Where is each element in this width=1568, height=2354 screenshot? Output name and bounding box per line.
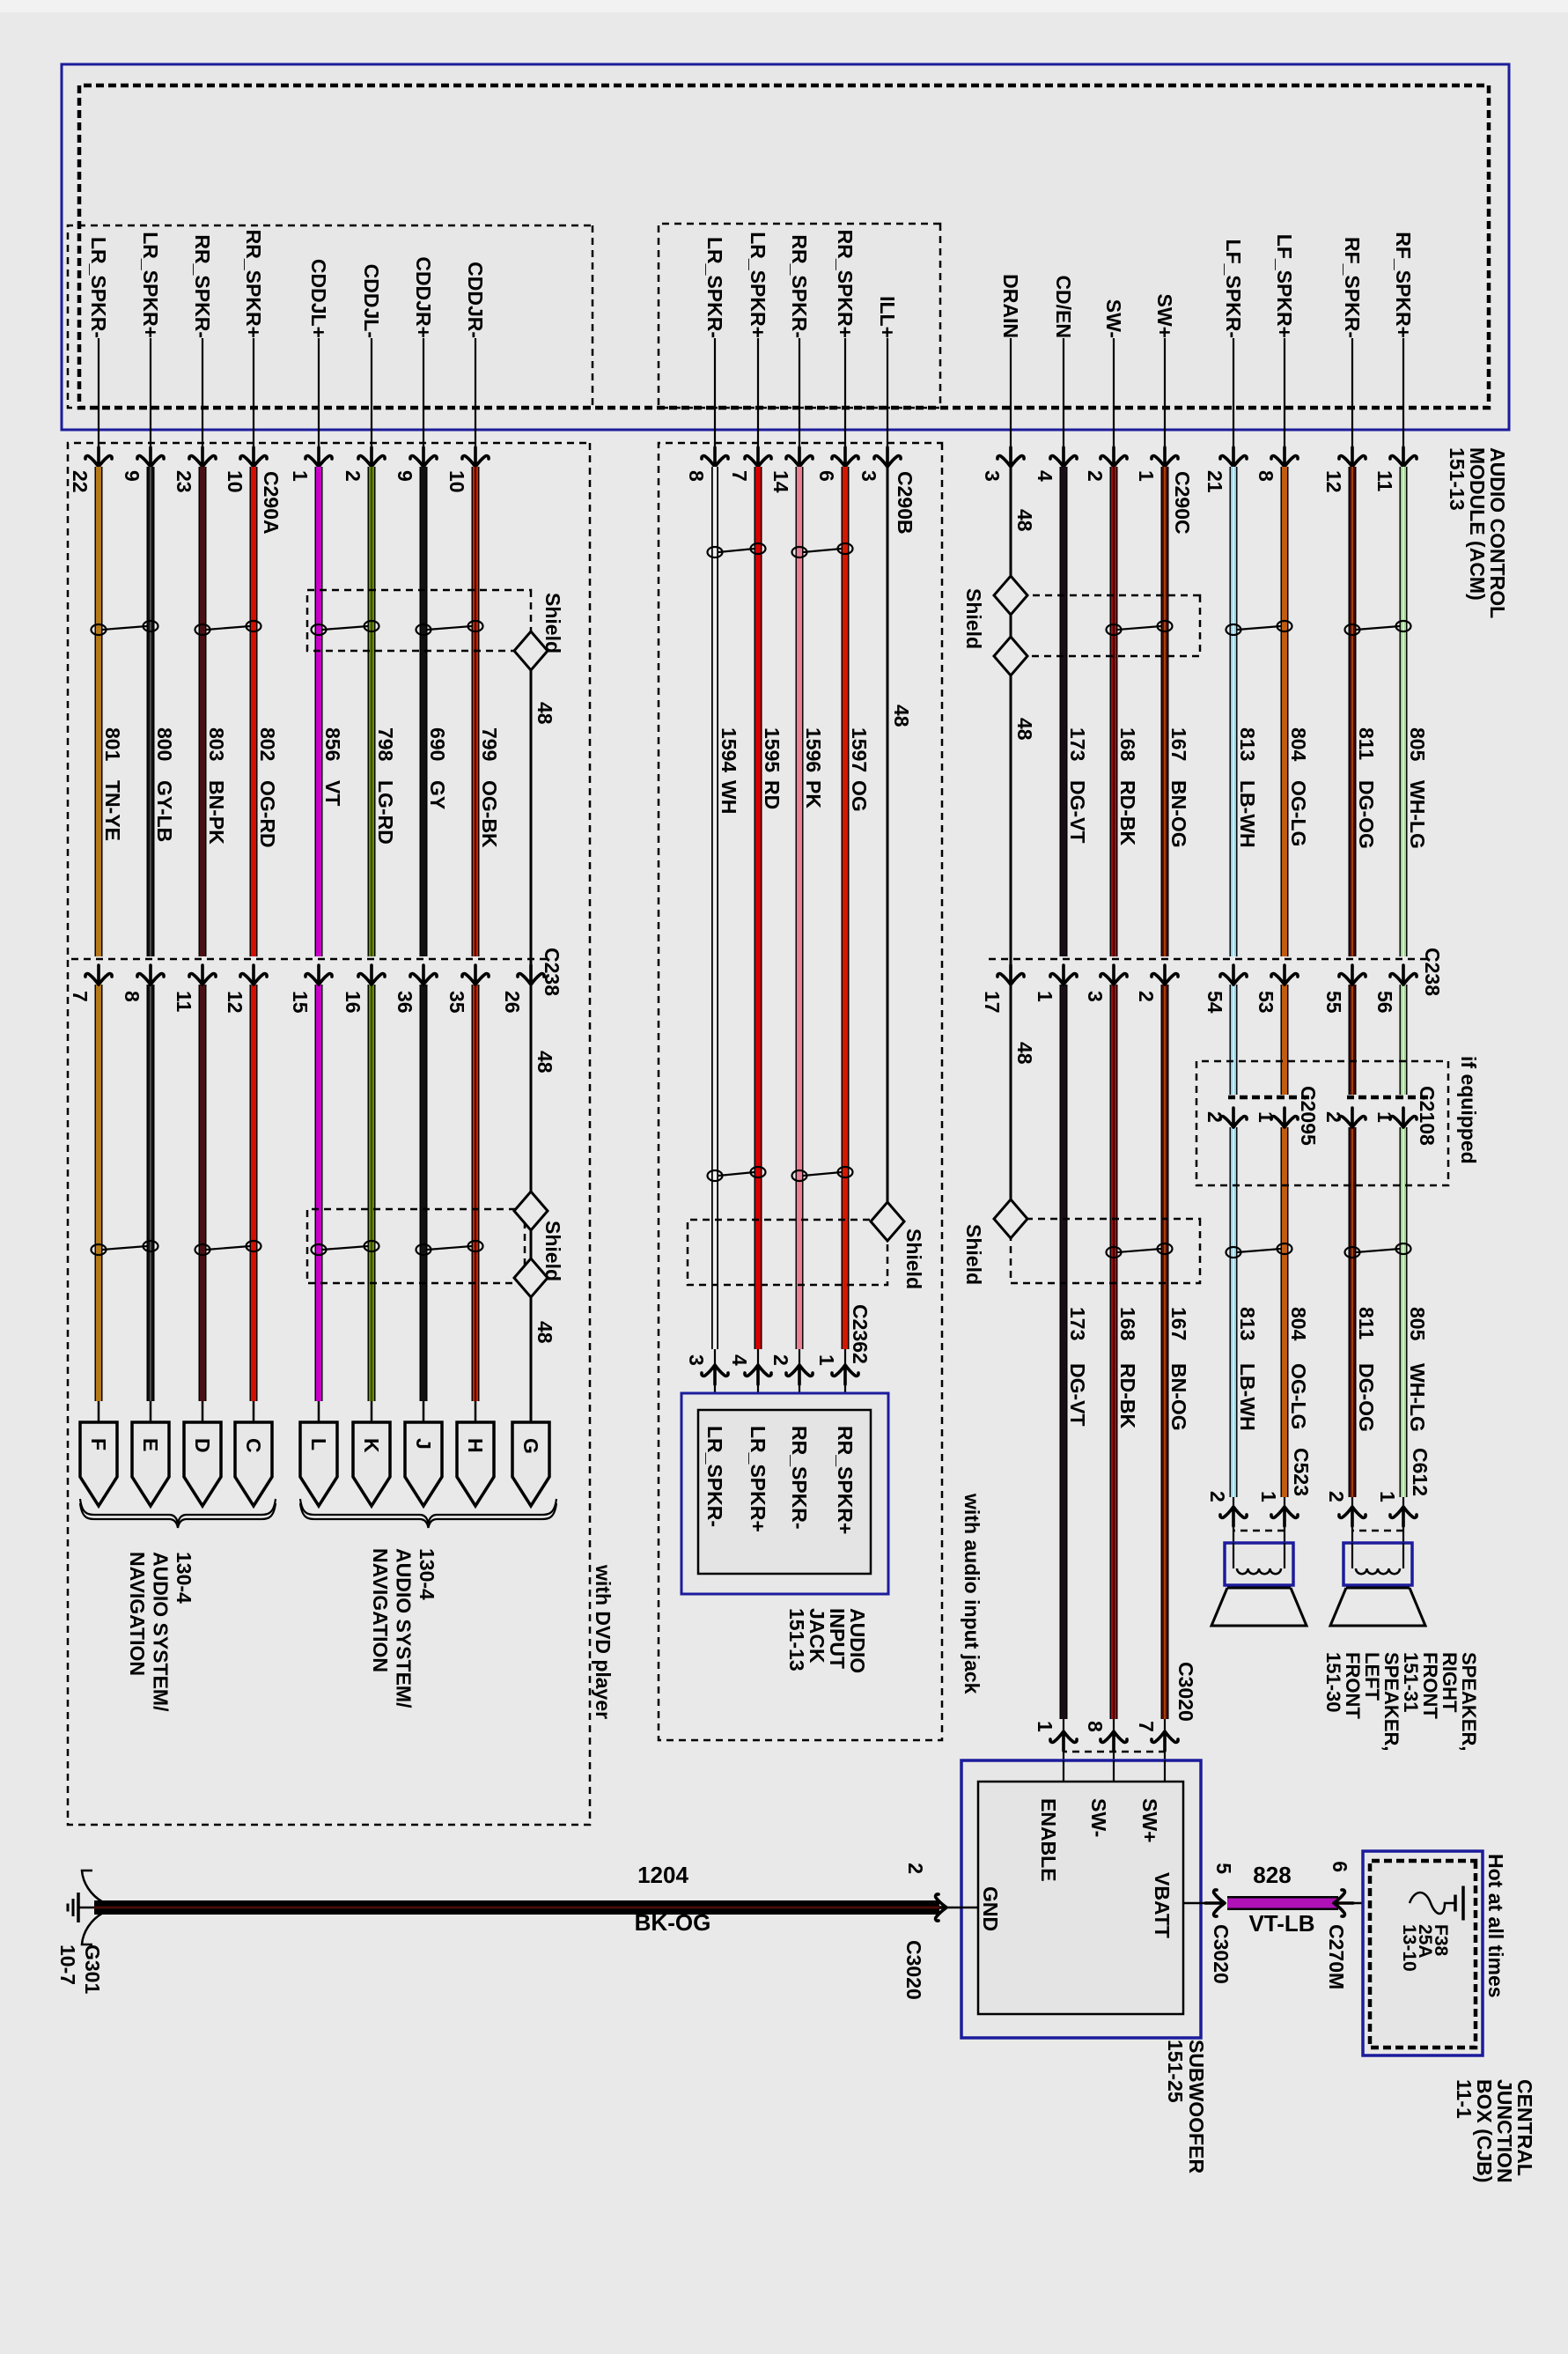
svg-text:RD-BK: RD-BK <box>1116 1363 1139 1428</box>
svg-text:21: 21 <box>1204 470 1226 493</box>
svg-text:801: 801 <box>101 727 124 762</box>
svg-text:7: 7 <box>1135 1721 1158 1732</box>
svg-text:LR_SPKR+: LR_SPKR+ <box>747 1426 769 1532</box>
svg-text:151-30: 151-30 <box>1322 1652 1344 1713</box>
svg-text:813: 813 <box>1236 727 1259 761</box>
svg-text:G: G <box>519 1438 542 1454</box>
svg-text:Shield: Shield <box>541 1221 564 1281</box>
svg-text:RR_SPKR-: RR_SPKR- <box>191 234 214 338</box>
svg-text:130-4: 130-4 <box>416 1548 438 1600</box>
svg-text:2: 2 <box>342 470 364 482</box>
svg-text:RR_SPKR+: RR_SPKR+ <box>834 1426 857 1534</box>
svg-text:798: 798 <box>374 727 397 762</box>
svg-text:DG-OG: DG-OG <box>1355 1363 1378 1432</box>
svg-text:9: 9 <box>394 470 416 482</box>
svg-text:SUBWOOFER: SUBWOOFER <box>1185 2040 1208 2173</box>
svg-text:1595: 1595 <box>761 727 784 772</box>
svg-text:2: 2 <box>1206 1491 1229 1502</box>
svg-text:K: K <box>360 1438 383 1453</box>
svg-text:3: 3 <box>1084 991 1107 1002</box>
svg-text:AUDIO SYSTEM/: AUDIO SYSTEM/ <box>393 1548 416 1708</box>
svg-text:48: 48 <box>890 705 913 727</box>
svg-text:LF_SPKR+: LF_SPKR+ <box>1273 234 1296 338</box>
svg-text:12: 12 <box>224 991 247 1014</box>
svg-text:151-25: 151-25 <box>1164 2040 1187 2103</box>
svg-text:7: 7 <box>728 470 751 482</box>
svg-text:803: 803 <box>205 727 228 761</box>
svg-text:if equipped: if equipped <box>1457 1056 1480 1164</box>
svg-text:8: 8 <box>121 991 144 1002</box>
svg-text:3: 3 <box>685 1354 708 1366</box>
svg-text:WH: WH <box>718 780 740 814</box>
svg-text:C290B: C290B <box>894 471 917 535</box>
svg-text:E: E <box>139 1438 162 1451</box>
svg-text:C2095: C2095 <box>1297 1086 1320 1146</box>
svg-text:NAVIGATION: NAVIGATION <box>369 1548 392 1672</box>
svg-text:RD-BK: RD-BK <box>1116 780 1139 845</box>
svg-text:TN-YE: TN-YE <box>101 780 124 841</box>
svg-text:811: 811 <box>1355 727 1378 760</box>
svg-text:BN-PK: BN-PK <box>205 780 228 845</box>
svg-text:48: 48 <box>534 702 556 725</box>
svg-text:VT-LB: VT-LB <box>1248 1910 1314 1937</box>
svg-text:5: 5 <box>1212 1863 1235 1874</box>
svg-text:1: 1 <box>1034 1721 1056 1732</box>
svg-text:C612: C612 <box>1409 1448 1432 1496</box>
svg-text:LF_SPKR-: LF_SPKR- <box>1222 240 1245 338</box>
svg-text:9: 9 <box>121 470 144 482</box>
svg-text:LB-WH: LB-WH <box>1236 1363 1259 1431</box>
svg-text:48: 48 <box>1013 718 1036 741</box>
svg-text:BK-OG: BK-OG <box>635 1909 711 1936</box>
svg-text:48: 48 <box>1013 1042 1036 1065</box>
svg-text:OG-LG: OG-LG <box>1287 1363 1310 1429</box>
svg-text:OG-BK: OG-BK <box>478 780 501 848</box>
svg-text:ILL+: ILL+ <box>876 296 899 338</box>
svg-text:H: H <box>464 1438 487 1453</box>
svg-text:JACK: JACK <box>806 1608 828 1664</box>
svg-text:4: 4 <box>1034 470 1056 482</box>
svg-text:35: 35 <box>445 991 468 1014</box>
svg-text:WH-LG: WH-LG <box>1406 1363 1429 1432</box>
svg-text:173: 173 <box>1066 1307 1089 1340</box>
svg-text:8: 8 <box>685 470 708 482</box>
svg-text:C3020: C3020 <box>902 1940 925 2000</box>
svg-text:LEFT: LEFT <box>1361 1652 1383 1701</box>
svg-text:VBATT: VBATT <box>1151 1872 1174 1938</box>
svg-text:6: 6 <box>815 470 838 482</box>
svg-text:RF_SPKR+: RF_SPKR+ <box>1392 232 1415 338</box>
svg-text:36: 36 <box>394 991 416 1014</box>
svg-text:11: 11 <box>173 991 195 1013</box>
svg-text:RR_SPKR+: RR_SPKR+ <box>834 230 857 338</box>
svg-text:173: 173 <box>1066 727 1089 761</box>
svg-text:14: 14 <box>769 470 792 493</box>
svg-text:RR_SPKR-: RR_SPKR- <box>788 1426 811 1530</box>
svg-text:2: 2 <box>769 1354 792 1366</box>
svg-text:C290C: C290C <box>1171 471 1194 535</box>
svg-text:804: 804 <box>1287 727 1310 762</box>
svg-text:BOX (CJB): BOX (CJB) <box>1473 2079 1496 2183</box>
svg-text:CDDJR-: CDDJR- <box>464 262 487 338</box>
svg-text:1: 1 <box>1373 1111 1396 1123</box>
svg-text:OG-RD: OG-RD <box>256 780 279 848</box>
svg-text:2: 2 <box>1084 470 1107 482</box>
svg-text:C3020: C3020 <box>1174 1662 1197 1722</box>
svg-text:D: D <box>191 1438 214 1453</box>
svg-text:23: 23 <box>173 470 195 493</box>
svg-text:L: L <box>307 1438 330 1450</box>
svg-text:1: 1 <box>1034 991 1056 1002</box>
svg-text:LG-RD: LG-RD <box>374 780 397 845</box>
svg-text:LR_SPKR-: LR_SPKR- <box>703 237 726 338</box>
svg-text:JUNCTION: JUNCTION <box>1493 2079 1516 2183</box>
svg-text:151-31: 151-31 <box>1400 1652 1422 1713</box>
svg-text:DRAIN: DRAIN <box>999 274 1022 338</box>
svg-text:GY-LB: GY-LB <box>153 780 176 842</box>
svg-text:C2362: C2362 <box>849 1304 872 1364</box>
svg-text:Shield: Shield <box>962 1224 985 1285</box>
svg-text:15: 15 <box>289 991 312 1014</box>
svg-text:168: 168 <box>1116 727 1139 762</box>
svg-text:G301: G301 <box>81 1944 104 1994</box>
svg-text:OG-LG: OG-LG <box>1287 780 1310 846</box>
svg-text:1: 1 <box>1135 470 1158 482</box>
svg-text:Shield: Shield <box>962 588 985 649</box>
svg-text:LR_SPKR-: LR_SPKR- <box>703 1426 726 1527</box>
svg-text:AUDIO CONTROL: AUDIO CONTROL <box>1486 447 1509 618</box>
svg-text:OG: OG <box>848 780 871 812</box>
svg-text:LR_SPKR+: LR_SPKR+ <box>747 232 769 338</box>
svg-text:C3020: C3020 <box>1210 1924 1233 1984</box>
svg-text:10-7: 10-7 <box>56 1944 79 1985</box>
svg-text:3: 3 <box>858 470 880 482</box>
svg-text:1594: 1594 <box>718 727 740 772</box>
svg-text:RIGHT: RIGHT <box>1439 1652 1461 1713</box>
svg-text:SPEAKER,: SPEAKER, <box>1458 1652 1480 1751</box>
svg-text:805: 805 <box>1406 1307 1429 1341</box>
svg-text:C2108: C2108 <box>1416 1086 1439 1146</box>
svg-text:800: 800 <box>153 727 176 761</box>
svg-text:GND: GND <box>979 1886 1002 1931</box>
svg-text:811: 811 <box>1355 1307 1378 1339</box>
svg-text:INPUT: INPUT <box>826 1608 849 1669</box>
svg-text:BN-OG: BN-OG <box>1167 1363 1190 1431</box>
svg-text:SW-: SW- <box>1102 299 1125 338</box>
svg-text:C: C <box>242 1438 265 1453</box>
svg-text:with DVD player: with DVD player <box>592 1564 615 1719</box>
svg-text:CDDJL+: CDDJL+ <box>307 259 330 338</box>
svg-text:CD/EN: CD/EN <box>1052 275 1075 338</box>
svg-text:SW-: SW- <box>1087 1798 1110 1837</box>
svg-text:LR_SPKR-: LR_SPKR- <box>87 237 110 338</box>
svg-text:11-1: 11-1 <box>1453 2079 1476 2119</box>
svg-text:SW+: SW+ <box>1153 294 1176 338</box>
svg-text:55: 55 <box>1322 991 1345 1014</box>
svg-text:22: 22 <box>69 470 92 493</box>
svg-text:Shield: Shield <box>902 1229 925 1289</box>
svg-text:805: 805 <box>1406 727 1429 762</box>
svg-text:167: 167 <box>1167 727 1190 761</box>
svg-text:16: 16 <box>342 991 364 1014</box>
svg-text:with audio input jack: with audio input jack <box>961 1493 983 1694</box>
svg-text:48: 48 <box>534 1321 556 1344</box>
svg-text:10: 10 <box>224 470 247 493</box>
svg-text:AUDIO: AUDIO <box>846 1608 869 1673</box>
svg-text:48: 48 <box>1013 509 1036 532</box>
svg-text:CDDJL-: CDDJL- <box>360 264 383 338</box>
svg-text:3: 3 <box>981 470 1004 482</box>
svg-text:828: 828 <box>1253 1862 1291 1888</box>
svg-text:1: 1 <box>1255 1111 1277 1123</box>
svg-text:2: 2 <box>1325 1491 1348 1502</box>
svg-text:11: 11 <box>1373 470 1396 492</box>
svg-text:NAVIGATION: NAVIGATION <box>126 1552 149 1676</box>
svg-text:C290A: C290A <box>260 471 283 535</box>
svg-text:799: 799 <box>478 727 501 761</box>
svg-text:1596: 1596 <box>802 727 825 772</box>
svg-text:7: 7 <box>69 991 92 1002</box>
svg-text:167: 167 <box>1167 1307 1190 1340</box>
svg-text:Hot at all times: Hot at all times <box>1484 1854 1507 1998</box>
svg-text:56: 56 <box>1373 991 1396 1014</box>
svg-text:VT: VT <box>321 780 344 806</box>
svg-text:RR_SPKR-: RR_SPKR- <box>788 234 811 338</box>
svg-text:4: 4 <box>728 1354 751 1366</box>
svg-text:690: 690 <box>426 727 449 761</box>
svg-text:RR_SPKR+: RR_SPKR+ <box>242 230 265 338</box>
svg-text:54: 54 <box>1204 991 1226 1014</box>
svg-text:2: 2 <box>1204 1111 1226 1123</box>
svg-text:RD: RD <box>761 780 784 809</box>
svg-text:C238: C238 <box>541 948 563 996</box>
svg-text:SW+: SW+ <box>1138 1798 1161 1842</box>
svg-text:J: J <box>412 1438 435 1450</box>
svg-text:2: 2 <box>904 1863 927 1874</box>
svg-text:GY: GY <box>426 780 449 809</box>
svg-text:2: 2 <box>1322 1111 1345 1123</box>
svg-text:802: 802 <box>256 727 279 761</box>
svg-text:12: 12 <box>1322 470 1345 493</box>
svg-text:DG-OG: DG-OG <box>1355 780 1378 849</box>
svg-text:MODULE (ACM): MODULE (ACM) <box>1466 447 1489 601</box>
svg-text:C238: C238 <box>1421 948 1444 996</box>
svg-text:48: 48 <box>534 1051 556 1074</box>
svg-text:Shield: Shield <box>541 593 564 653</box>
svg-text:1597: 1597 <box>848 727 871 772</box>
svg-text:FRONT: FRONT <box>1342 1652 1364 1719</box>
svg-text:1: 1 <box>815 1354 838 1366</box>
svg-text:130-4: 130-4 <box>173 1552 195 1604</box>
svg-text:RF_SPKR-: RF_SPKR- <box>1341 237 1364 338</box>
svg-text:C523: C523 <box>1290 1448 1313 1496</box>
svg-text:168: 168 <box>1116 1307 1139 1341</box>
svg-text:CDDJR+: CDDJR+ <box>412 256 435 338</box>
svg-text:6: 6 <box>1329 1861 1351 1872</box>
svg-text:1: 1 <box>1257 1491 1280 1502</box>
svg-text:LR_SPKR+: LR_SPKR+ <box>139 232 162 338</box>
svg-text:1204: 1204 <box>637 1862 688 1888</box>
svg-text:DG-VT: DG-VT <box>1066 780 1089 844</box>
svg-text:CENTRAL: CENTRAL <box>1513 2079 1536 2176</box>
svg-text:53: 53 <box>1255 991 1277 1014</box>
svg-text:813: 813 <box>1236 1307 1259 1340</box>
svg-text:PK: PK <box>802 780 825 808</box>
svg-text:8: 8 <box>1255 470 1277 482</box>
svg-text:LB-WH: LB-WH <box>1236 780 1259 848</box>
svg-text:FRONT: FRONT <box>1419 1652 1441 1719</box>
svg-text:SPEAKER,: SPEAKER, <box>1380 1652 1402 1751</box>
svg-text:DG-VT: DG-VT <box>1066 1363 1089 1427</box>
svg-text:AUDIO SYSTEM/: AUDIO SYSTEM/ <box>150 1552 173 1712</box>
svg-text:151-13: 151-13 <box>1446 447 1469 511</box>
svg-text:2: 2 <box>1135 991 1158 1002</box>
svg-text:1: 1 <box>289 470 312 482</box>
svg-text:1: 1 <box>1376 1491 1399 1502</box>
svg-text:8: 8 <box>1084 1721 1107 1732</box>
svg-text:26: 26 <box>501 991 524 1014</box>
svg-text:10: 10 <box>445 470 468 493</box>
svg-text:151-13: 151-13 <box>785 1608 808 1671</box>
svg-text:804: 804 <box>1287 1307 1310 1341</box>
svg-text:WH-LG: WH-LG <box>1406 780 1429 849</box>
svg-text:BN-OG: BN-OG <box>1167 780 1190 848</box>
svg-text:ENABLE: ENABLE <box>1037 1798 1060 1882</box>
svg-text:C270M: C270M <box>1325 1924 1348 1989</box>
svg-text:F: F <box>87 1438 110 1450</box>
svg-text:856: 856 <box>321 727 344 761</box>
svg-text:17: 17 <box>981 991 1004 1014</box>
svg-text:13-10: 13-10 <box>1399 1924 1419 1972</box>
